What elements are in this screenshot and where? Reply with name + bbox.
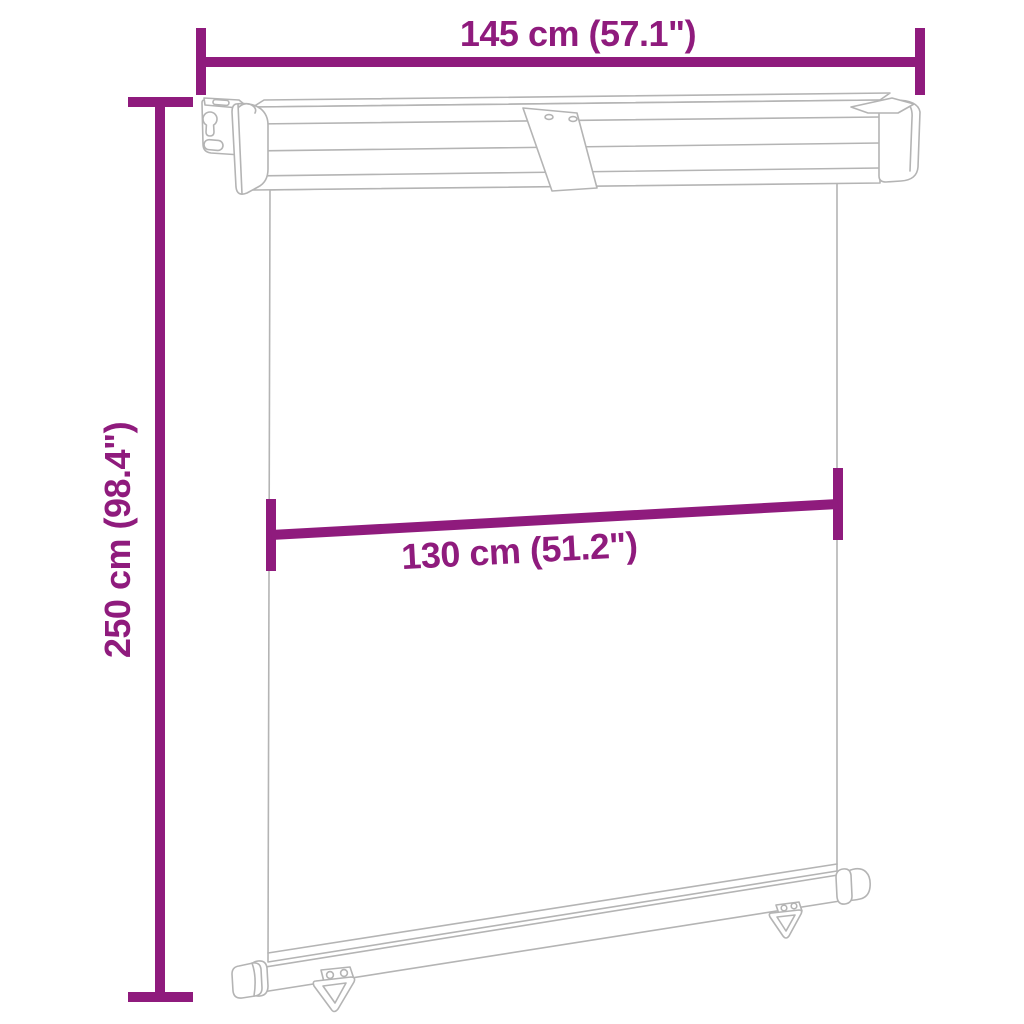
height-dimension: 250 cm (98.4") (97, 102, 193, 997)
product-dimension-diagram: 145 cm (57.1") 250 cm (98.4") 130 cm (51… (0, 0, 1024, 1024)
cassette-left-cap (232, 104, 268, 195)
fabric-panel (268, 180, 837, 962)
width-dimension: 145 cm (57.1") (201, 13, 920, 95)
right-hook-ring (769, 910, 801, 938)
bottom-bar-right-collar (836, 869, 852, 904)
wall-bracket-slot (204, 139, 224, 151)
left-hook-ring (313, 977, 354, 1012)
width-dimension-label: 145 cm (57.1") (460, 13, 696, 54)
bottom-bar-left-cap (232, 963, 262, 998)
height-dimension-label: 250 cm (98.4") (97, 422, 138, 658)
awning-diagram-svg: 145 cm (57.1") 250 cm (98.4") 130 cm (51… (0, 0, 1024, 1024)
